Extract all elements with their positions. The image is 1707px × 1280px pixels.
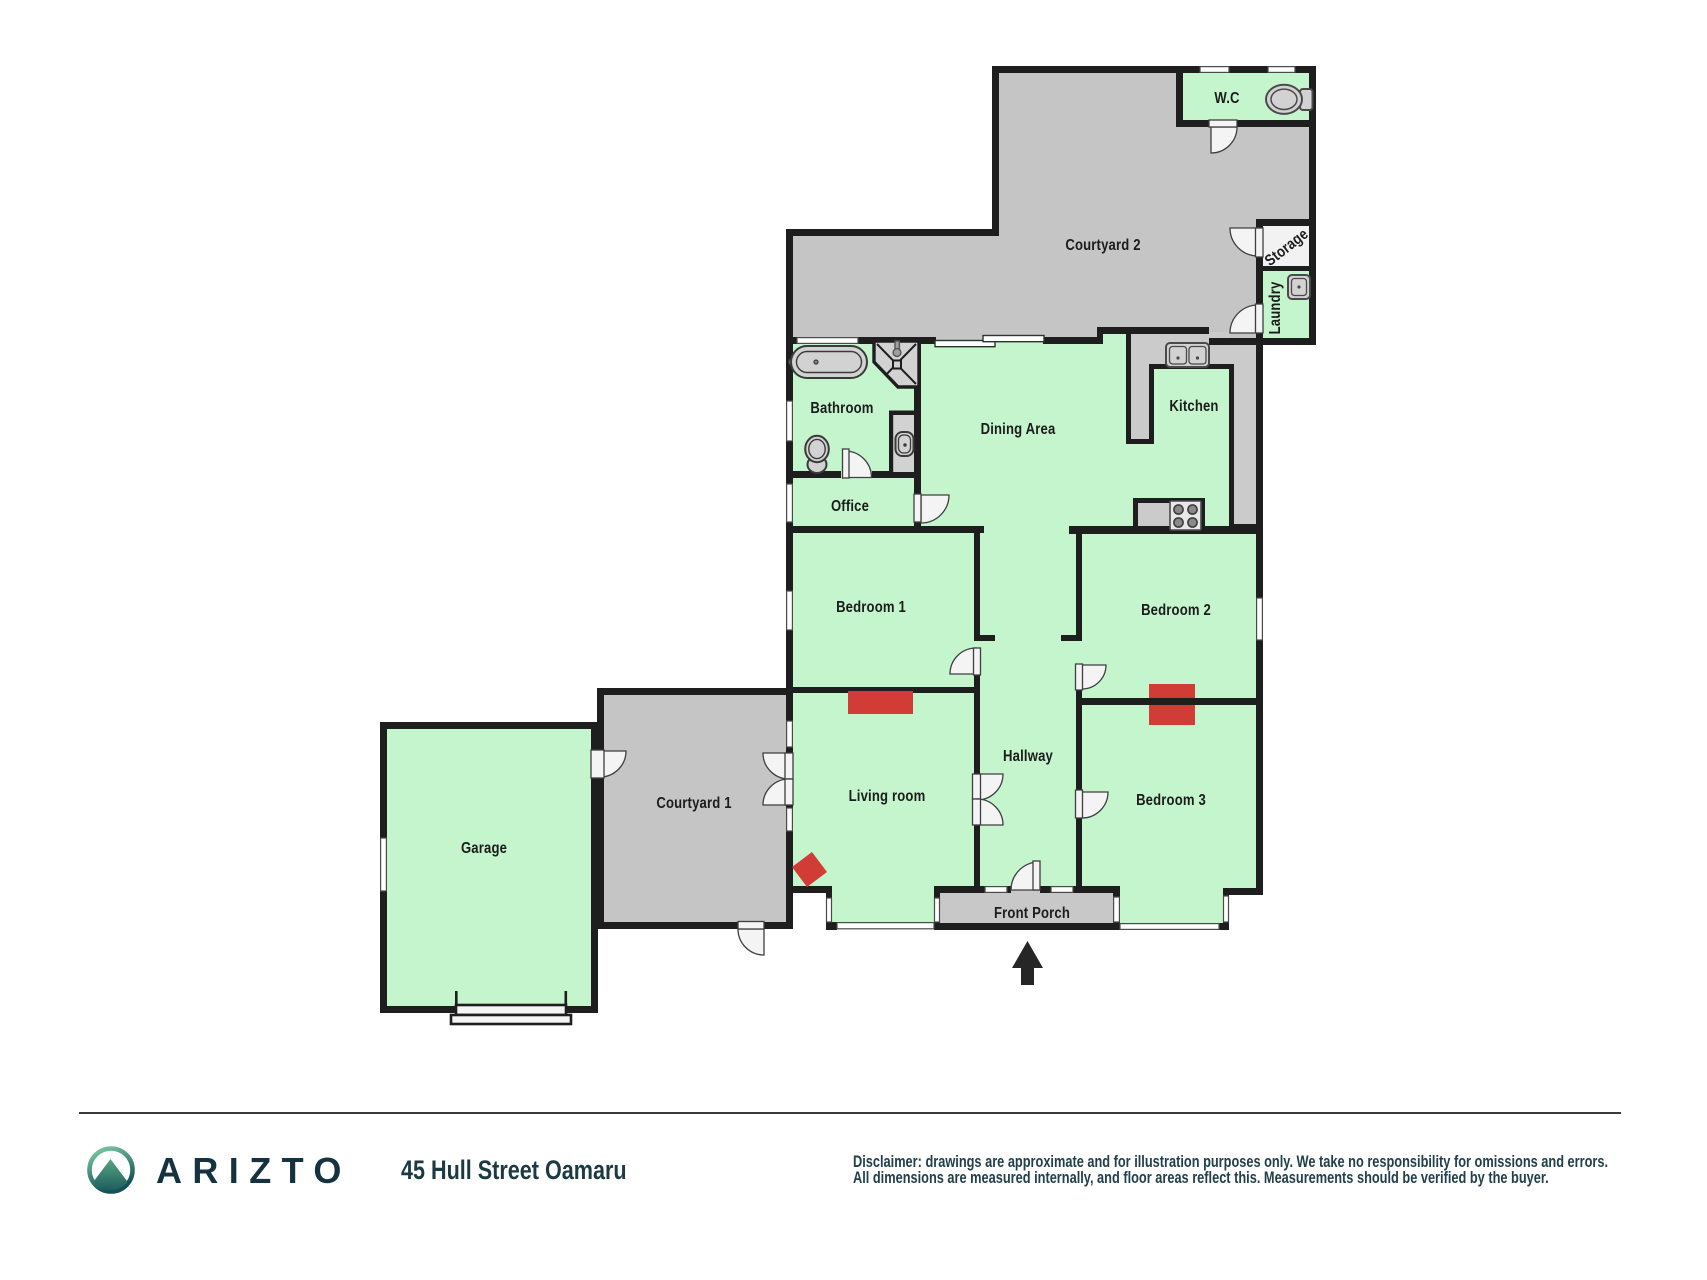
svg-text:Living room: Living room <box>849 788 926 805</box>
svg-text:Bedroom 2: Bedroom 2 <box>1141 602 1211 619</box>
svg-text:Kitchen: Kitchen <box>1169 398 1218 415</box>
svg-text:Front Porch: Front Porch <box>994 905 1070 922</box>
svg-text:Courtyard 1: Courtyard 1 <box>656 795 731 812</box>
svg-text:Bathroom: Bathroom <box>810 400 873 417</box>
svg-text:Garage: Garage <box>461 840 507 857</box>
svg-text:Laundry: Laundry <box>1267 282 1284 335</box>
svg-text:Hallway: Hallway <box>1003 748 1053 765</box>
svg-text:Courtyard 2: Courtyard 2 <box>1065 237 1140 254</box>
svg-text:Bedroom 1: Bedroom 1 <box>836 599 906 616</box>
svg-text:W.C: W.C <box>1214 90 1239 107</box>
svg-text:Bedroom 3: Bedroom 3 <box>1136 792 1206 809</box>
svg-text:Office: Office <box>831 498 869 515</box>
svg-text:All dimensions are measured in: All dimensions are measured internally, … <box>853 1170 1549 1188</box>
svg-text:Dining Area: Dining Area <box>981 421 1057 438</box>
svg-text:45 Hull Street Oamaru: 45 Hull Street Oamaru <box>401 1156 627 1186</box>
svg-text:ARIZTO: ARIZTO <box>156 1150 352 1191</box>
